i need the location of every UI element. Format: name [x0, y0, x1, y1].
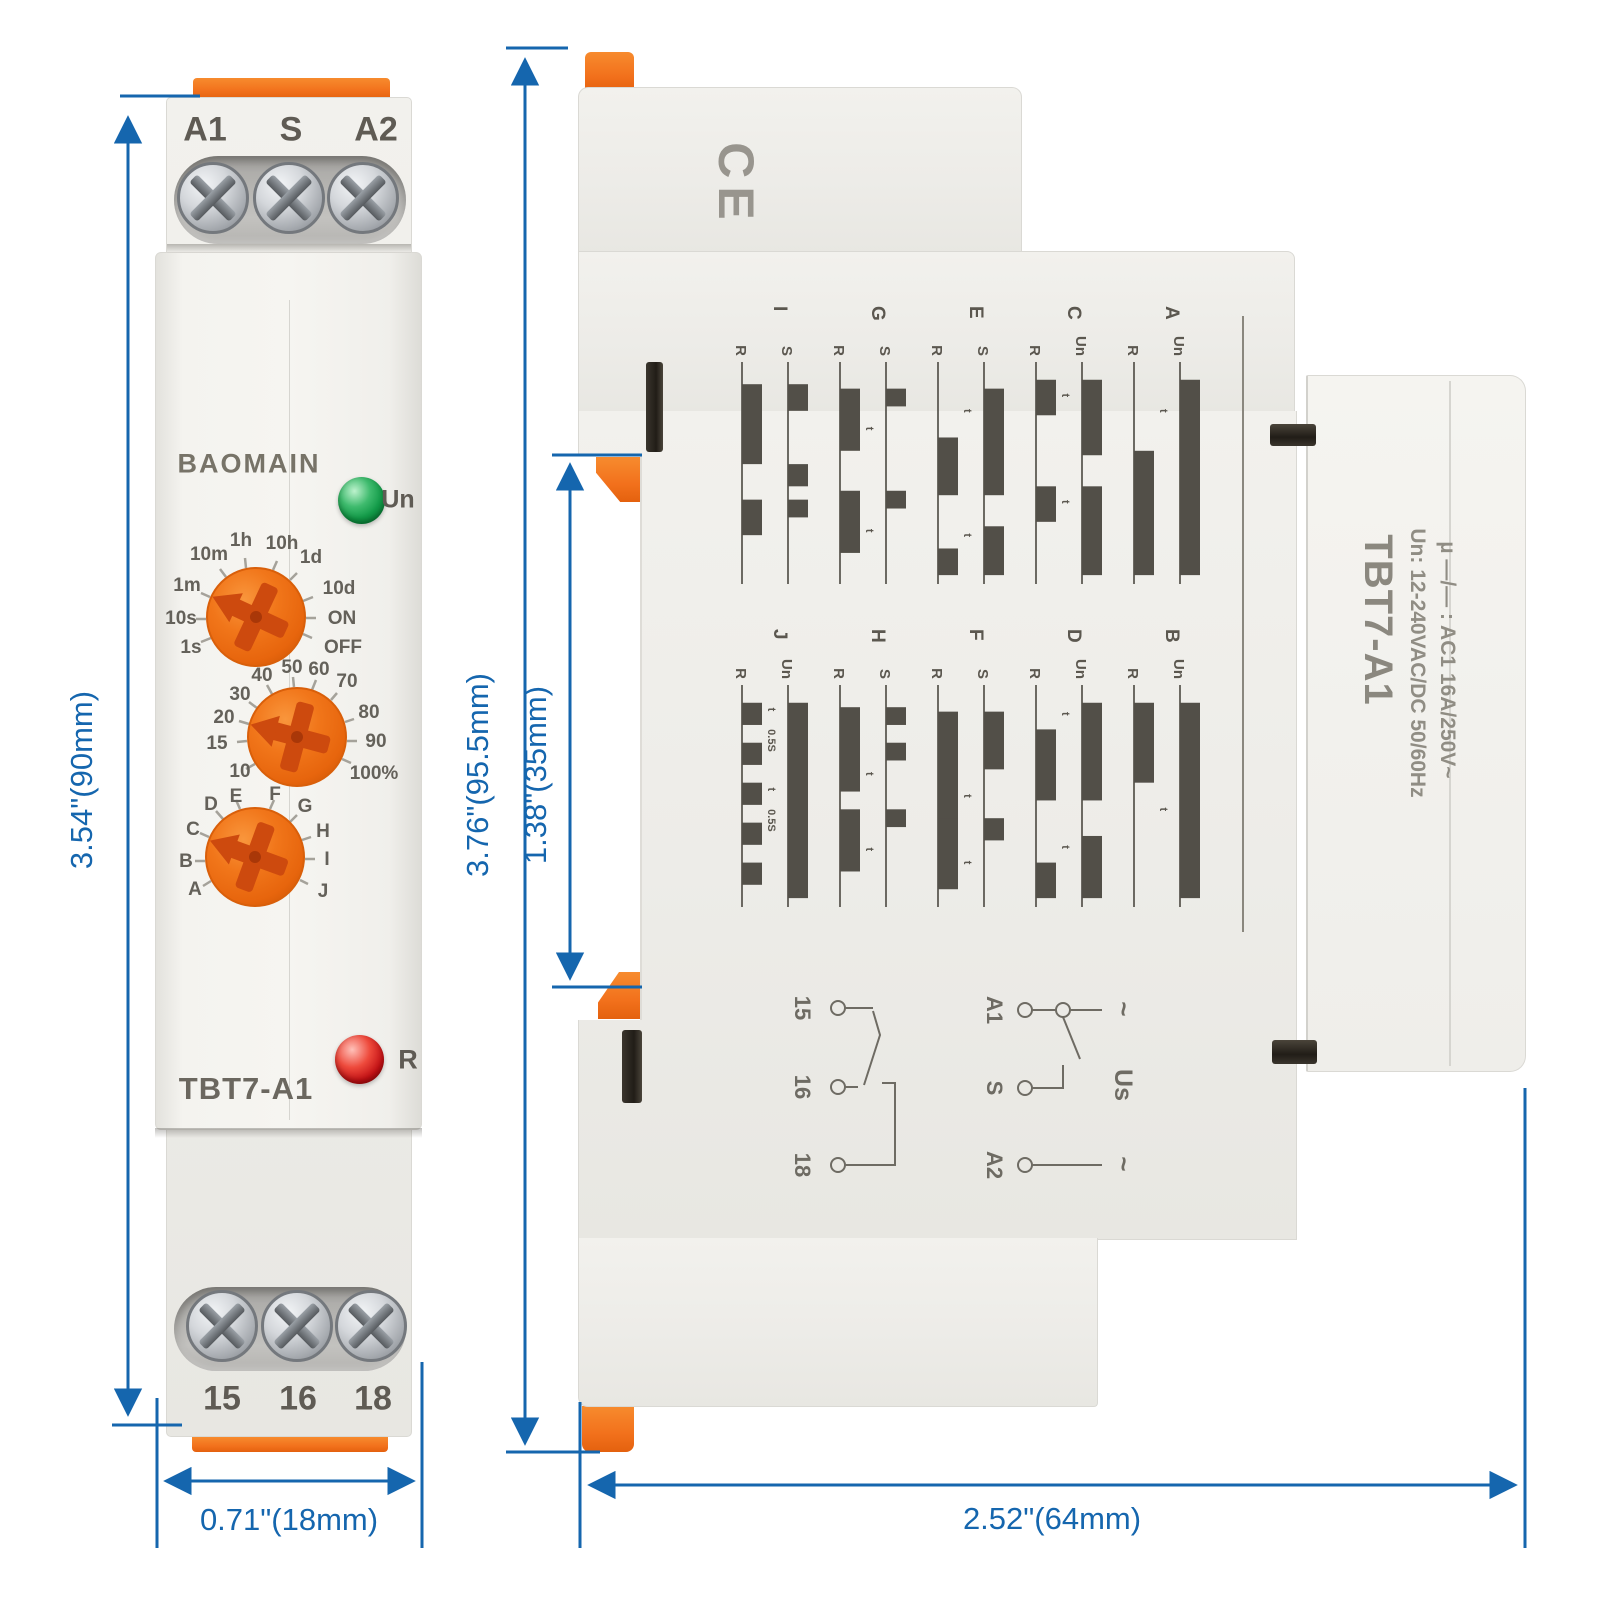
- dimension-lines: [0, 0, 1600, 1600]
- dim-side-height: 3.76"(95.5mm): [460, 673, 496, 877]
- dim-front-height: 3.54"(90mm): [64, 691, 100, 869]
- dim-rail-height: 1.38"(35mm): [518, 686, 554, 864]
- dim-front-width: 0.71"(18mm): [200, 1502, 378, 1538]
- product-dimension-diagram: A1 S A2 BAOMAIN Un: [0, 0, 1600, 1600]
- dim-side-depth: 2.52"(64mm): [963, 1501, 1141, 1537]
